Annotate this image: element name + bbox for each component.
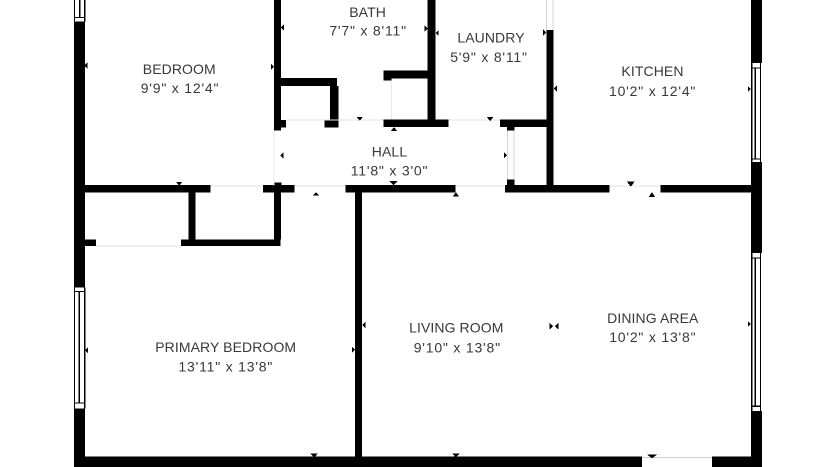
svg-text:PRIMARY BEDROOM: PRIMARY BEDROOM (155, 339, 296, 355)
svg-text:9'9" x 12'4": 9'9" x 12'4" (141, 80, 220, 96)
svg-text:11'8" x 3'0": 11'8" x 3'0" (351, 163, 429, 179)
svg-text:BEDROOM: BEDROOM (143, 61, 216, 77)
svg-text:KITCHEN: KITCHEN (621, 63, 683, 79)
svg-text:DINING AREA: DINING AREA (607, 310, 699, 326)
svg-text:5'9" x 8'11": 5'9" x 8'11" (450, 49, 528, 65)
svg-text:7'7" x 8'11": 7'7" x 8'11" (329, 23, 407, 39)
svg-text:HALL: HALL (372, 144, 408, 160)
svg-text:10'2" x 12'4": 10'2" x 12'4" (609, 83, 696, 99)
svg-text:10'2" x 13'8": 10'2" x 13'8" (609, 329, 696, 345)
svg-text:13'11" x 13'8": 13'11" x 13'8" (178, 359, 273, 375)
svg-text:LIVING ROOM: LIVING ROOM (409, 320, 503, 336)
svg-text:9'10" x 13'8": 9'10" x 13'8" (414, 340, 501, 356)
svg-text:BATH: BATH (349, 4, 386, 20)
svg-text:LAUNDRY: LAUNDRY (457, 30, 525, 46)
